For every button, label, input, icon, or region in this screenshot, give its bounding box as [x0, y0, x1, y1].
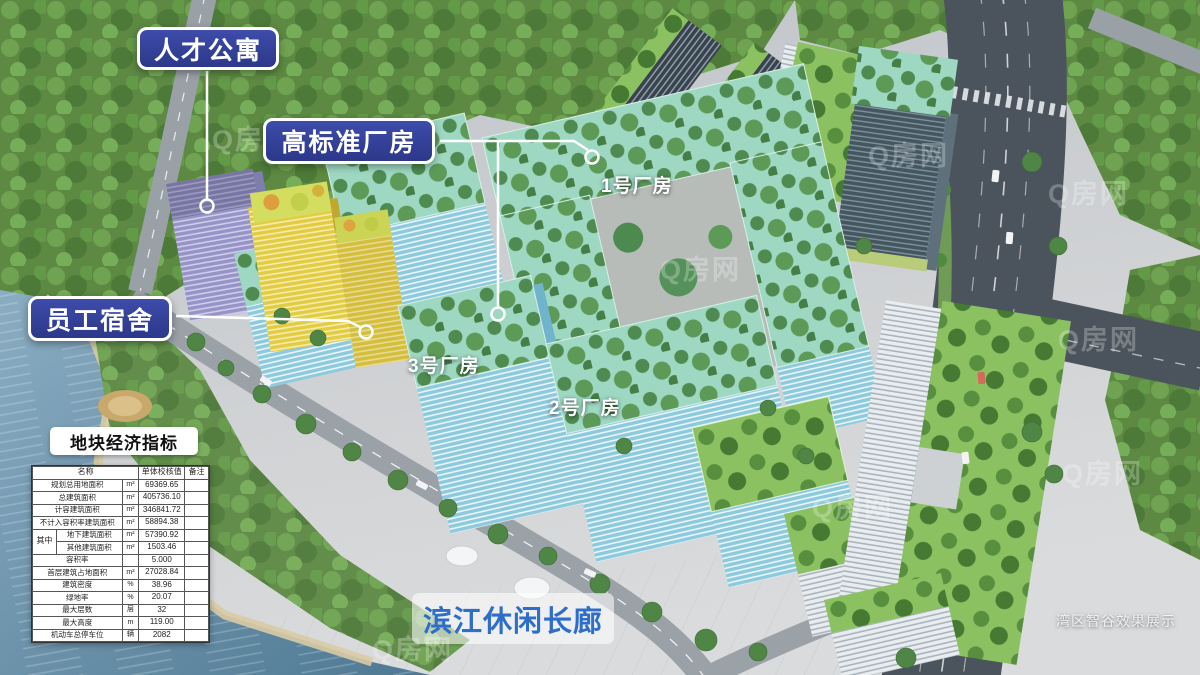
table-cell — [185, 529, 209, 542]
label-high-standard-factory: 高标准厂房 — [263, 118, 435, 164]
table-cell: 38.96 — [139, 579, 185, 592]
table-cell: 机动车总停车位 — [33, 629, 123, 642]
table-cell: 58894.38 — [139, 517, 185, 530]
table-cell: 2082 — [139, 629, 185, 642]
table-cell: m² — [122, 504, 139, 517]
table-cell: 规划总用地面积 — [33, 479, 123, 492]
table-cell: 57390.92 — [139, 529, 185, 542]
table-cell — [185, 504, 209, 517]
table-cell: 容积率 — [33, 554, 123, 567]
table-cell — [185, 579, 209, 592]
table-row: 规划总用地面积m²69369.65 — [33, 479, 209, 492]
table-cell: m² — [122, 492, 139, 505]
table-row: 容积率5.000 — [33, 554, 209, 567]
label-talent-apartment: 人才公寓 — [137, 27, 279, 70]
table-cell: 405736.10 — [139, 492, 185, 505]
table-row: 总建筑面积m²405736.10 — [33, 492, 209, 505]
table-cell — [185, 479, 209, 492]
factory-1-tag: 1号厂房 — [601, 171, 673, 198]
table-cell — [185, 617, 209, 630]
table-cell: 其他建筑面积 — [56, 542, 122, 555]
table-row: 机动车总停车位辆2082 — [33, 629, 209, 642]
indicator-table-body: 名称单体校核值备注规划总用地面积m²69369.65总建筑面积m²405736.… — [33, 467, 209, 642]
table-row: 建筑密度%38.96 — [33, 579, 209, 592]
table-row: 最大高度m119.00 — [33, 617, 209, 630]
table-cell — [185, 554, 209, 567]
table-cell: 32 — [139, 604, 185, 617]
table-cell: m² — [122, 567, 139, 580]
table-cell: 5.000 — [139, 554, 185, 567]
table-cell: m² — [122, 542, 139, 555]
table-cell — [122, 554, 139, 567]
table-cell: 119.00 — [139, 617, 185, 630]
table-cell: m — [122, 617, 139, 630]
label-riverside-corridor: 滨江休闲长廊 — [412, 593, 614, 644]
table-row: 计容建筑面积m²346841.72 — [33, 504, 209, 517]
table-cell — [185, 629, 209, 642]
table-cell: 346841.72 — [139, 504, 185, 517]
table-cell — [185, 542, 209, 555]
table-cell — [185, 592, 209, 605]
table-cell — [185, 567, 209, 580]
table-cell — [185, 604, 209, 617]
table-cell: 最大层数 — [33, 604, 123, 617]
table-cell: 不计入容积率建筑面积 — [33, 517, 123, 530]
table-cell: 绿地率 — [33, 592, 123, 605]
factory-3-tag: 3号厂房 — [408, 351, 480, 378]
table-row: 其中地下建筑面积m²57390.92 — [33, 529, 209, 542]
table-cell: 27028.84 — [139, 567, 185, 580]
table-header-cell: 名称 — [33, 467, 139, 480]
table-row: 首层建筑占地面积m²27028.84 — [33, 567, 209, 580]
table-cell: 辆 — [122, 629, 139, 642]
table-header-cell: 单体校核值 — [139, 467, 185, 480]
table-cell: 建筑密度 — [33, 579, 123, 592]
table-cell: 首层建筑占地面积 — [33, 567, 123, 580]
table-cell: 69369.65 — [139, 479, 185, 492]
caption-text: 湾区智谷效果展示 — [1056, 611, 1176, 631]
table-row: 不计入容积率建筑面积m²58894.38 — [33, 517, 209, 530]
table-cell: 层 — [122, 604, 139, 617]
table-cell: 其中 — [33, 529, 57, 554]
table-cell: % — [122, 592, 139, 605]
label-staff-dormitory: 员工宿舍 — [28, 296, 172, 341]
table-cell: 最大高度 — [33, 617, 123, 630]
table-cell: 总建筑面积 — [33, 492, 123, 505]
table-row: 最大层数层32 — [33, 604, 209, 617]
table-cell — [185, 517, 209, 530]
indicator-table-card: 名称单体校核值备注规划总用地面积m²69369.65总建筑面积m²405736.… — [31, 465, 210, 643]
table-cell: 地下建筑面积 — [56, 529, 122, 542]
table-header-cell: 备注 — [185, 467, 209, 480]
table-row: 绿地率%20.07 — [33, 592, 209, 605]
table-cell — [185, 492, 209, 505]
table-cell: m² — [122, 517, 139, 530]
table-row: 其他建筑面积m²1503.46 — [33, 542, 209, 555]
indicator-table: 名称单体校核值备注规划总用地面积m²69369.65总建筑面积m²405736.… — [32, 466, 209, 642]
table-cell: m² — [122, 529, 139, 542]
table-cell: 1503.46 — [139, 542, 185, 555]
table-cell: % — [122, 579, 139, 592]
table-cell: m² — [122, 479, 139, 492]
rendering-canvas: 人才公寓 高标准厂房 员工宿舍 1号厂房 3号厂房 2号厂房 滨江休闲长廊 湾区… — [0, 0, 1200, 675]
table-cell: 计容建筑面积 — [33, 504, 123, 517]
factory-2-tag: 2号厂房 — [549, 393, 621, 420]
indicator-title: 地块经济指标 — [50, 427, 198, 455]
table-cell: 20.07 — [139, 592, 185, 605]
table-header-row: 名称单体校核值备注 — [33, 467, 209, 480]
